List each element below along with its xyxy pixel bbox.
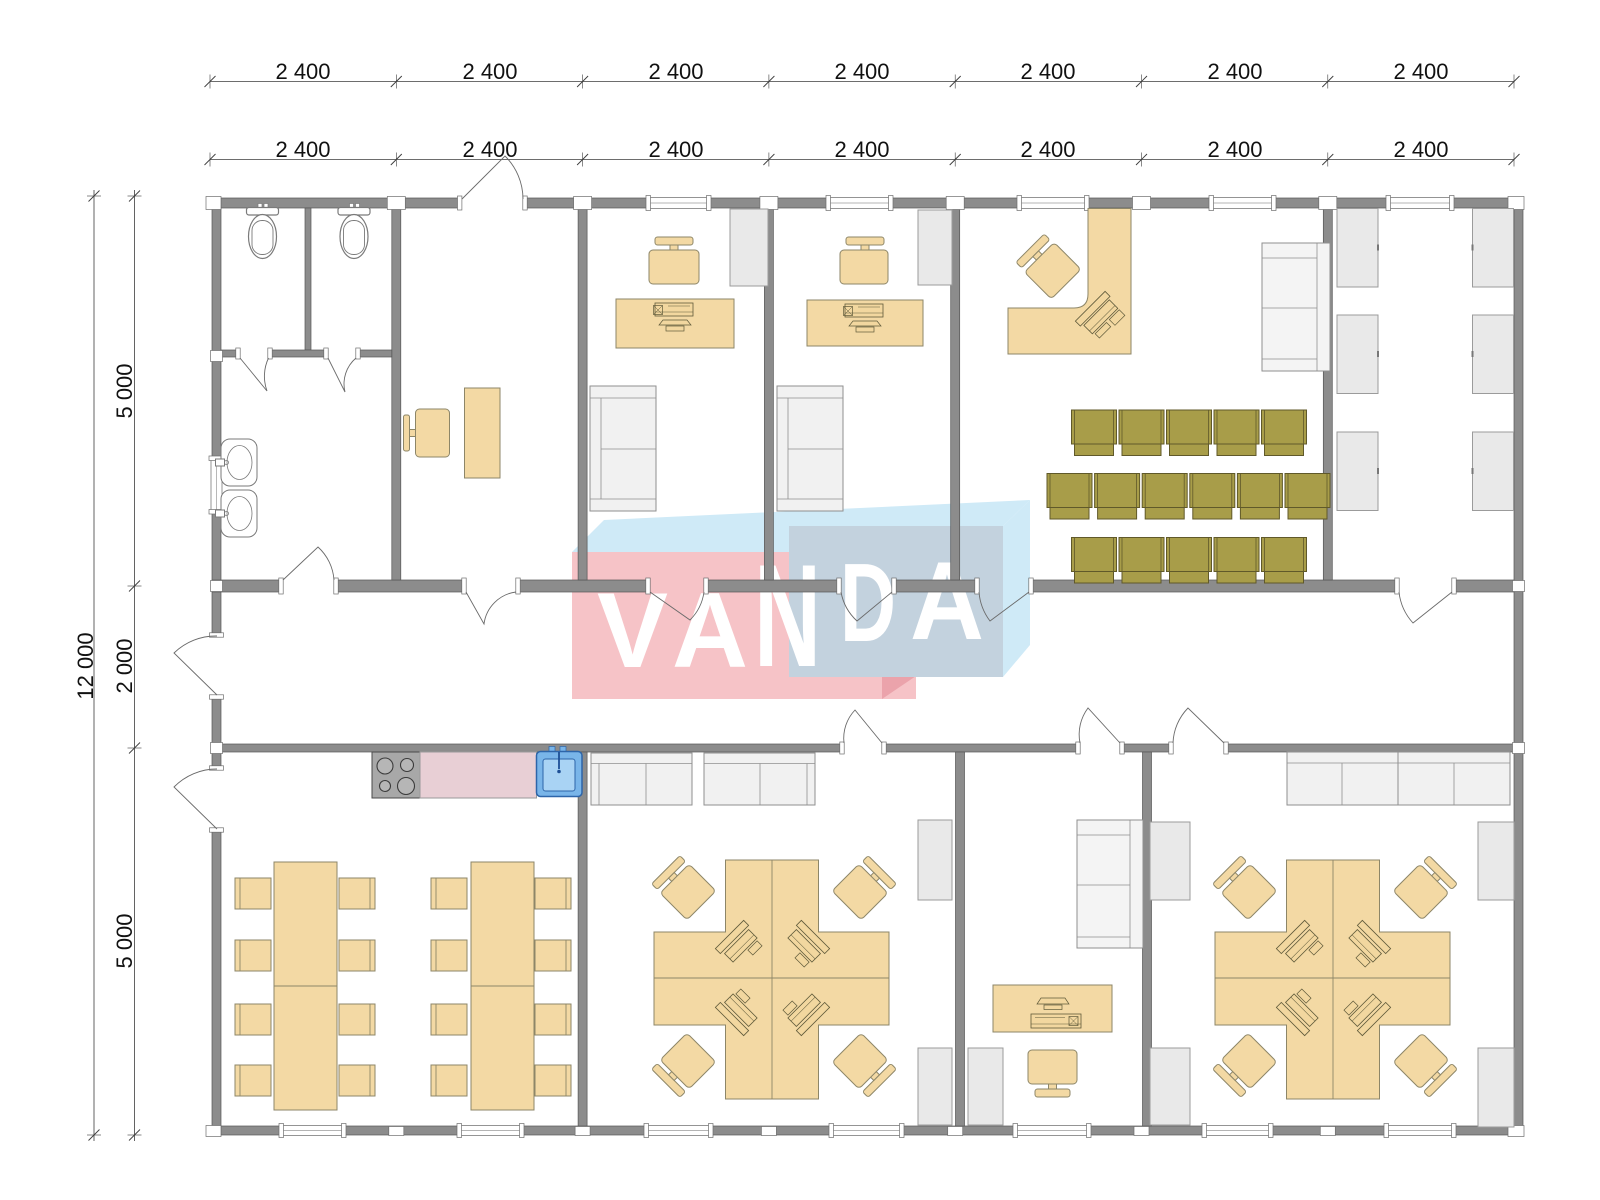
svg-text:2 400: 2 400 [275,137,330,162]
svg-text:2 400: 2 400 [1393,137,1448,162]
svg-text:2 400: 2 400 [1393,59,1448,84]
svg-text:N: N [754,534,821,697]
svg-text:5 000: 5 000 [112,913,137,968]
svg-text:2 400: 2 400 [462,137,517,162]
svg-text:2 400: 2 400 [834,59,889,84]
svg-text:2 400: 2 400 [1020,59,1075,84]
svg-text:2 400: 2 400 [1207,59,1262,84]
svg-text:D: D [840,541,896,665]
svg-text:A: A [910,539,984,663]
svg-text:12 000: 12 000 [73,632,98,699]
svg-text:5 000: 5 000 [112,363,137,418]
svg-text:2 400: 2 400 [462,59,517,84]
svg-text:2 400: 2 400 [1020,137,1075,162]
svg-text:2 400: 2 400 [648,137,703,162]
svg-text:2 400: 2 400 [648,59,703,84]
svg-text:2 400: 2 400 [275,59,330,84]
svg-text:2 400: 2 400 [1207,137,1262,162]
svg-text:2 400: 2 400 [834,137,889,162]
svg-text:2 000: 2 000 [112,638,137,693]
